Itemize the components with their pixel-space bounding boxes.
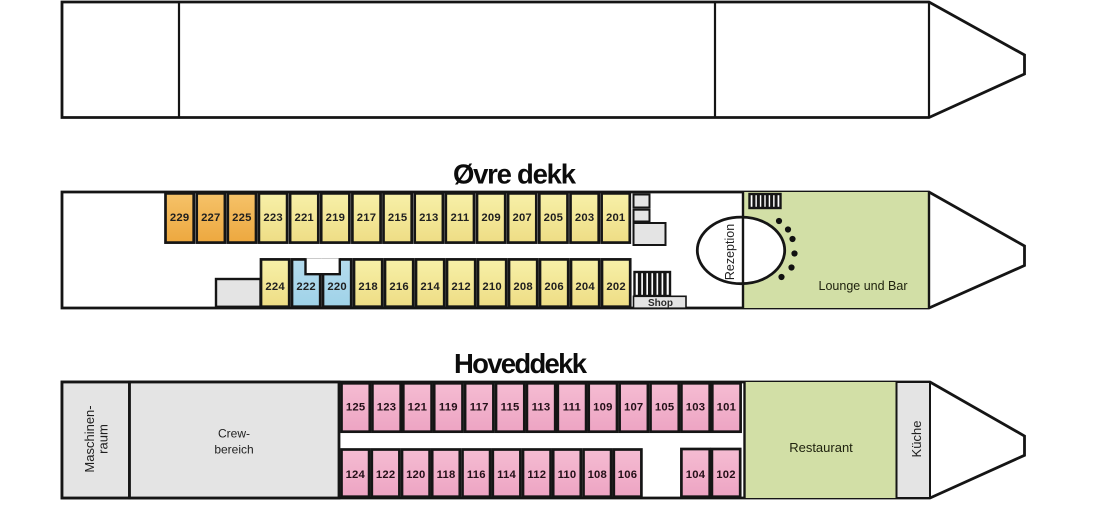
svg-text:109: 109 (593, 402, 612, 414)
svg-text:203: 203 (575, 212, 594, 224)
svg-text:110: 110 (558, 469, 577, 481)
svg-text:119: 119 (439, 402, 458, 414)
svg-text:212: 212 (451, 281, 470, 293)
svg-text:222: 222 (296, 281, 315, 293)
svg-text:216: 216 (389, 281, 408, 293)
svg-text:102: 102 (716, 469, 735, 481)
svg-text:121: 121 (408, 402, 427, 414)
svg-text:Hoveddekk: Hoveddekk (454, 348, 588, 379)
svg-text:103: 103 (686, 402, 705, 414)
svg-text:112: 112 (527, 469, 546, 481)
svg-text:115: 115 (501, 402, 520, 414)
svg-text:202: 202 (606, 281, 625, 293)
svg-text:108: 108 (588, 469, 607, 481)
svg-text:123: 123 (377, 402, 396, 414)
svg-text:213: 213 (419, 212, 438, 224)
svg-text:Shop: Shop (648, 298, 673, 309)
svg-text:224: 224 (265, 281, 285, 293)
svg-text:114: 114 (497, 469, 516, 481)
svg-text:raum: raum (96, 424, 111, 454)
svg-text:Lounge und Bar: Lounge und Bar (819, 279, 908, 293)
svg-text:124: 124 (346, 469, 366, 481)
svg-text:107: 107 (624, 402, 643, 414)
svg-text:208: 208 (513, 281, 532, 293)
svg-text:101: 101 (717, 402, 736, 414)
svg-text:205: 205 (544, 212, 563, 224)
svg-text:207: 207 (512, 212, 531, 224)
svg-text:218: 218 (358, 281, 377, 293)
svg-text:125: 125 (346, 402, 365, 414)
svg-text:204: 204 (575, 281, 595, 293)
svg-text:116: 116 (467, 469, 486, 481)
svg-text:120: 120 (406, 469, 425, 481)
svg-text:Restaurant: Restaurant (789, 440, 853, 455)
svg-text:105: 105 (655, 402, 674, 414)
svg-text:113: 113 (532, 402, 551, 414)
svg-text:219: 219 (326, 212, 345, 224)
svg-text:122: 122 (376, 469, 395, 481)
svg-text:211: 211 (450, 212, 469, 224)
svg-text:111: 111 (563, 402, 581, 414)
svg-text:117: 117 (470, 402, 489, 414)
svg-text:225: 225 (232, 212, 251, 224)
svg-text:227: 227 (201, 212, 220, 224)
svg-text:215: 215 (388, 212, 407, 224)
svg-text:220: 220 (327, 281, 346, 293)
svg-text:201: 201 (606, 212, 625, 224)
svg-text:bereich: bereich (214, 443, 253, 457)
svg-text:Øvre dekk: Øvre dekk (453, 159, 577, 190)
svg-text:106: 106 (618, 469, 637, 481)
svg-text:229: 229 (170, 212, 189, 224)
svg-text:Crew-: Crew- (218, 427, 250, 441)
svg-text:214: 214 (420, 281, 440, 293)
svg-text:206: 206 (544, 281, 563, 293)
svg-text:210: 210 (482, 281, 501, 293)
svg-text:217: 217 (357, 212, 376, 224)
svg-text:Rezeption: Rezeption (723, 224, 737, 280)
svg-text:104: 104 (686, 469, 706, 481)
svg-text:209: 209 (481, 212, 500, 224)
svg-text:Küche: Küche (909, 421, 924, 458)
svg-text:223: 223 (263, 212, 282, 224)
svg-text:118: 118 (437, 469, 456, 481)
svg-text:221: 221 (294, 212, 313, 224)
